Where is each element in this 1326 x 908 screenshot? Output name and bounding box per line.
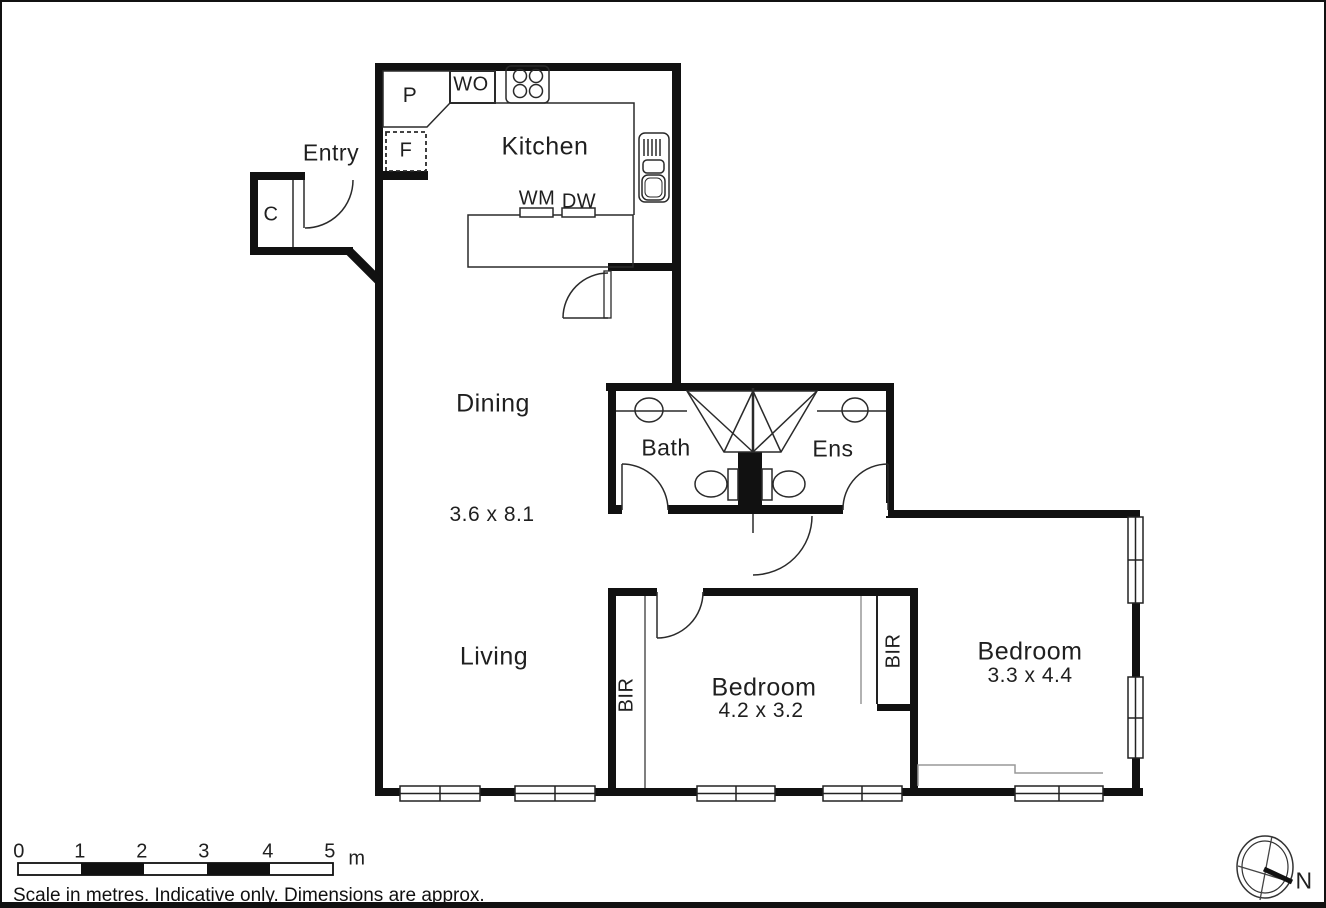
bedroom-right-step-line — [918, 765, 1103, 786]
wall-ens-east — [886, 383, 894, 514]
wall-kitchen-east — [672, 63, 681, 391]
scale-bar-outline — [18, 863, 333, 875]
cooktop — [506, 66, 549, 103]
wall-under-fridge — [375, 171, 428, 180]
window-bedroom-right-east-1 — [1128, 517, 1143, 603]
wall-entry-south — [250, 247, 353, 255]
window-living-1 — [400, 786, 480, 801]
wall-bir-stub — [877, 704, 918, 711]
window-living-2 — [515, 786, 595, 801]
wall-bath-north — [606, 383, 894, 391]
compass — [1237, 836, 1293, 900]
shower-ens — [753, 391, 817, 452]
wall-bath-west — [608, 383, 616, 514]
toilet-bath — [695, 469, 738, 500]
scale-tick-1: 1 — [74, 841, 86, 864]
compass-north-label: N — [1295, 868, 1312, 895]
wall-plumbing-block — [738, 452, 762, 514]
scale-bar-segment-1-2 — [81, 863, 144, 875]
scale-unit: m — [348, 848, 365, 871]
label-bedroom-right-dims: 3.3 x 4.4 — [987, 664, 1072, 688]
label-bedroom-mid-dims: 4.2 x 3.2 — [718, 699, 803, 723]
basin-bath — [635, 398, 663, 422]
label-pantry: P — [403, 84, 418, 108]
label-wall-oven: WO — [453, 74, 488, 97]
wall-north — [375, 63, 681, 71]
scale-caption: Scale in metres. Indicative only. Dimens… — [13, 885, 485, 907]
scale-tick-0: 0 — [13, 841, 25, 864]
door-front-entry — [304, 180, 353, 228]
label-living: Living — [460, 643, 528, 672]
floorplan-page: Entry Kitchen Dining 3.6 x 8.1 Living Ba… — [0, 0, 1326, 908]
opening-ens — [843, 503, 888, 516]
label-bir-right: BIR — [883, 634, 906, 669]
scale-tick-5: 5 — [324, 841, 336, 864]
door-kitchen — [563, 271, 611, 318]
label-bath: Bath — [641, 435, 690, 462]
label-entry: Entry — [303, 140, 359, 167]
wall-bedroom2-north — [886, 510, 1140, 518]
kitchen-sink — [639, 133, 669, 202]
window-bedroom-mid-2 — [823, 786, 902, 801]
label-ens: Ens — [812, 436, 853, 463]
shower-bath — [687, 391, 753, 452]
label-fridge: F — [400, 140, 413, 163]
label-dishwasher: DW — [562, 191, 596, 214]
scale-tick-3: 3 — [198, 841, 210, 864]
label-dining-dims: 3.6 x 8.1 — [449, 503, 534, 527]
door-openings — [622, 503, 888, 598]
wall-entry-chamfer — [349, 251, 379, 281]
doors — [304, 180, 888, 638]
scale-bar — [18, 863, 333, 875]
wall-entry-north — [250, 172, 305, 180]
label-dining: Dining — [456, 390, 530, 419]
door-hall — [753, 514, 812, 575]
window-bedroom-mid-1 — [697, 786, 775, 801]
scale-tick-4: 4 — [262, 841, 274, 864]
door-bedroom-mid — [657, 592, 703, 638]
kitchen-peninsula-bench — [468, 215, 633, 267]
wall-bedroom-north — [608, 588, 918, 596]
label-cupboard: C — [264, 204, 279, 227]
window-bedroom-right-south — [1015, 786, 1103, 801]
label-kitchen: Kitchen — [502, 133, 589, 162]
label-bedroom-right: Bedroom — [978, 638, 1083, 667]
label-washing-machine: WM — [519, 188, 556, 211]
scale-tick-2: 2 — [136, 841, 148, 864]
toilet-ens — [762, 469, 805, 500]
opening-bedroom-mid — [657, 586, 703, 598]
label-bir-left: BIR — [616, 678, 639, 713]
opening-bath — [622, 503, 668, 516]
scale-bar-segment-3-4 — [207, 863, 270, 875]
basin-ens — [842, 398, 868, 422]
wall-bir-divider — [910, 588, 918, 796]
wall-entry-west — [250, 172, 258, 255]
window-bedroom-right-east-2 — [1128, 677, 1143, 758]
